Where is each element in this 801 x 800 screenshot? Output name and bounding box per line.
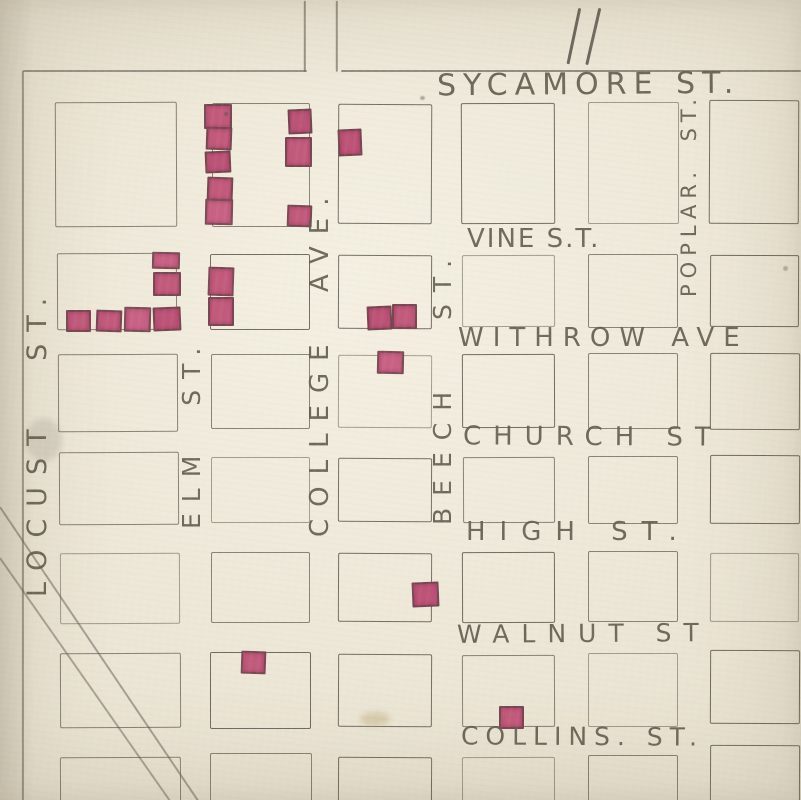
street-label-college: COLLEGE AVE.: [307, 186, 333, 537]
street-label-beech: BEECH ST.: [430, 248, 455, 525]
street-label-locust: LOCUST ST.: [24, 286, 51, 597]
street-label-vine: VINE S.T.: [467, 226, 600, 252]
street-label-elm: ELM ST.: [179, 337, 204, 529]
street-label-high: HIGH ST.: [466, 519, 691, 545]
map-canvas: SYCAMORE ST. VINE S.T. WITHROW AVE CHURC…: [0, 0, 801, 800]
street-label-collins: COLLINS. ST.: [461, 723, 704, 749]
paper-stain: [360, 712, 390, 726]
paper-stain: [783, 266, 788, 271]
street-label-withrow: WITHROW AVE: [458, 325, 749, 351]
street-label-walnut: WALNUT ST: [457, 620, 711, 647]
paper-stain: [420, 96, 425, 100]
paper-stain: [224, 112, 228, 116]
street-label-poplar: POPLAR. ST.: [679, 93, 700, 297]
street-label-church: CHURCH ST: [463, 423, 723, 450]
